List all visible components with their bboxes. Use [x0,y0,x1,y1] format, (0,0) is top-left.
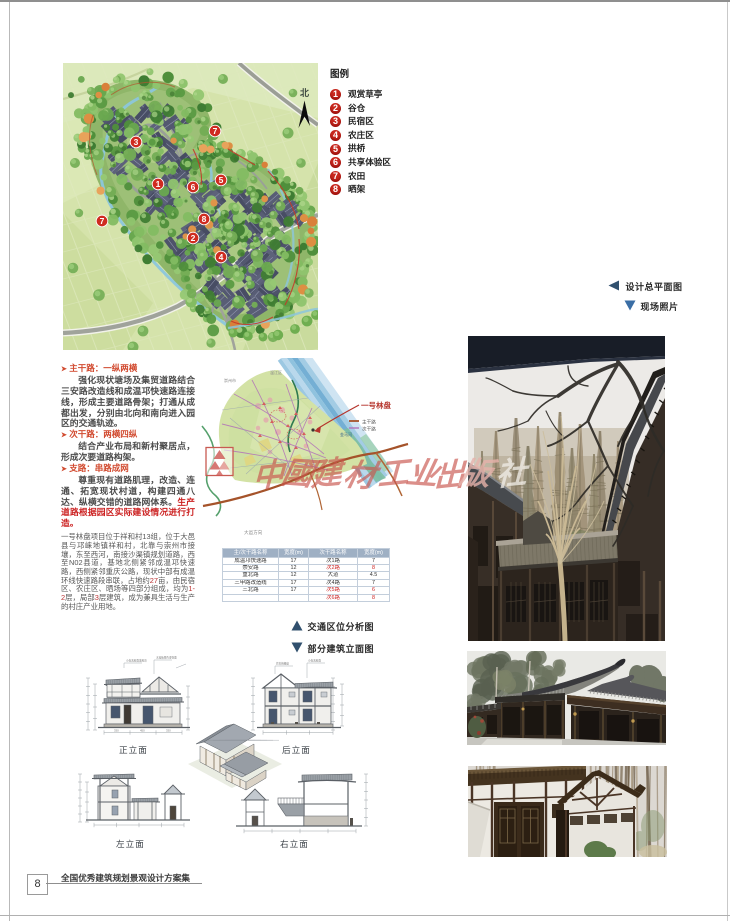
svg-text:8: 8 [202,214,207,224]
svg-text:4: 4 [219,252,224,262]
svg-text:330: 330 [114,729,119,733]
svg-text:7: 7 [100,216,105,226]
svg-text:7: 7 [213,126,218,136]
svg-text:次干路: 次干路 [362,426,376,433]
svg-text:仿古格栅窗: 仿古格栅窗 [276,662,289,666]
svg-text:正立面: 正立面 [119,744,148,755]
svg-text:左立面: 左立面 [116,838,145,849]
svg-text:3: 3 [134,137,139,147]
svg-text:6: 6 [191,182,196,192]
svg-text:右立面: 右立面 [280,838,309,849]
svg-text:小青瓦屋面: 小青瓦屋面 [308,659,321,663]
svg-text:1: 1 [156,179,161,189]
svg-text:后立面: 后立面 [282,744,311,755]
svg-text:小青瓦屋面坡屋顶: 小青瓦屋面坡屋顶 [126,659,147,663]
svg-text:木挂板栗色漆饰面: 木挂板栗色漆饰面 [156,656,177,660]
svg-text:金马河: 金马河 [340,431,352,437]
svg-text:温江区: 温江区 [270,369,282,375]
svg-text:5: 5 [219,175,224,185]
svg-text:主干路: 主干路 [362,419,376,426]
svg-text:330: 330 [166,729,171,733]
svg-text:大邑方向: 大邑方向 [244,529,263,536]
svg-text:一号林盘: 一号林盘 [361,400,391,410]
svg-text:崇州市: 崇州市 [224,377,236,383]
svg-text:2: 2 [191,233,196,243]
svg-text:450: 450 [140,729,145,733]
